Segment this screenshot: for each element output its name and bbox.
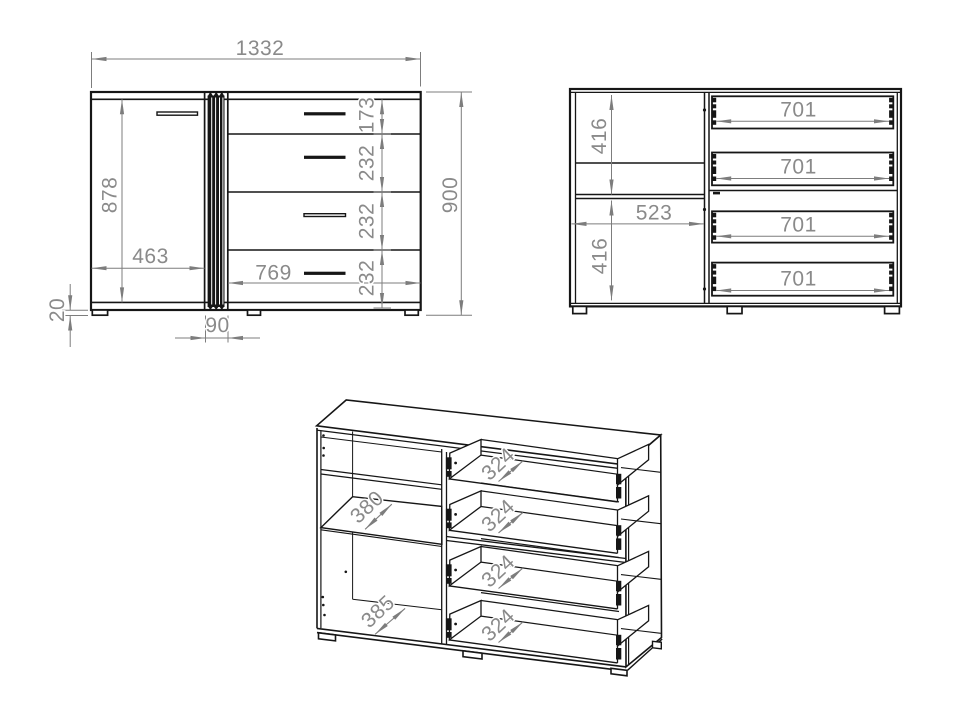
svg-text:463: 463: [132, 245, 169, 268]
svg-text:878: 878: [99, 177, 122, 214]
svg-text:20: 20: [46, 298, 69, 322]
svg-text:701: 701: [780, 268, 817, 291]
svg-text:701: 701: [780, 213, 817, 236]
svg-text:232: 232: [356, 260, 379, 297]
svg-text:416: 416: [588, 118, 611, 155]
svg-text:173: 173: [356, 97, 379, 134]
svg-text:701: 701: [780, 98, 817, 121]
svg-text:416: 416: [589, 238, 612, 275]
svg-text:523: 523: [636, 202, 673, 225]
svg-text:1332: 1332: [236, 37, 285, 60]
svg-text:232: 232: [356, 145, 379, 182]
svg-text:900: 900: [439, 177, 462, 214]
svg-text:232: 232: [356, 203, 379, 240]
svg-text:769: 769: [255, 262, 292, 285]
svg-text:90: 90: [205, 314, 229, 337]
svg-text:701: 701: [780, 156, 817, 179]
